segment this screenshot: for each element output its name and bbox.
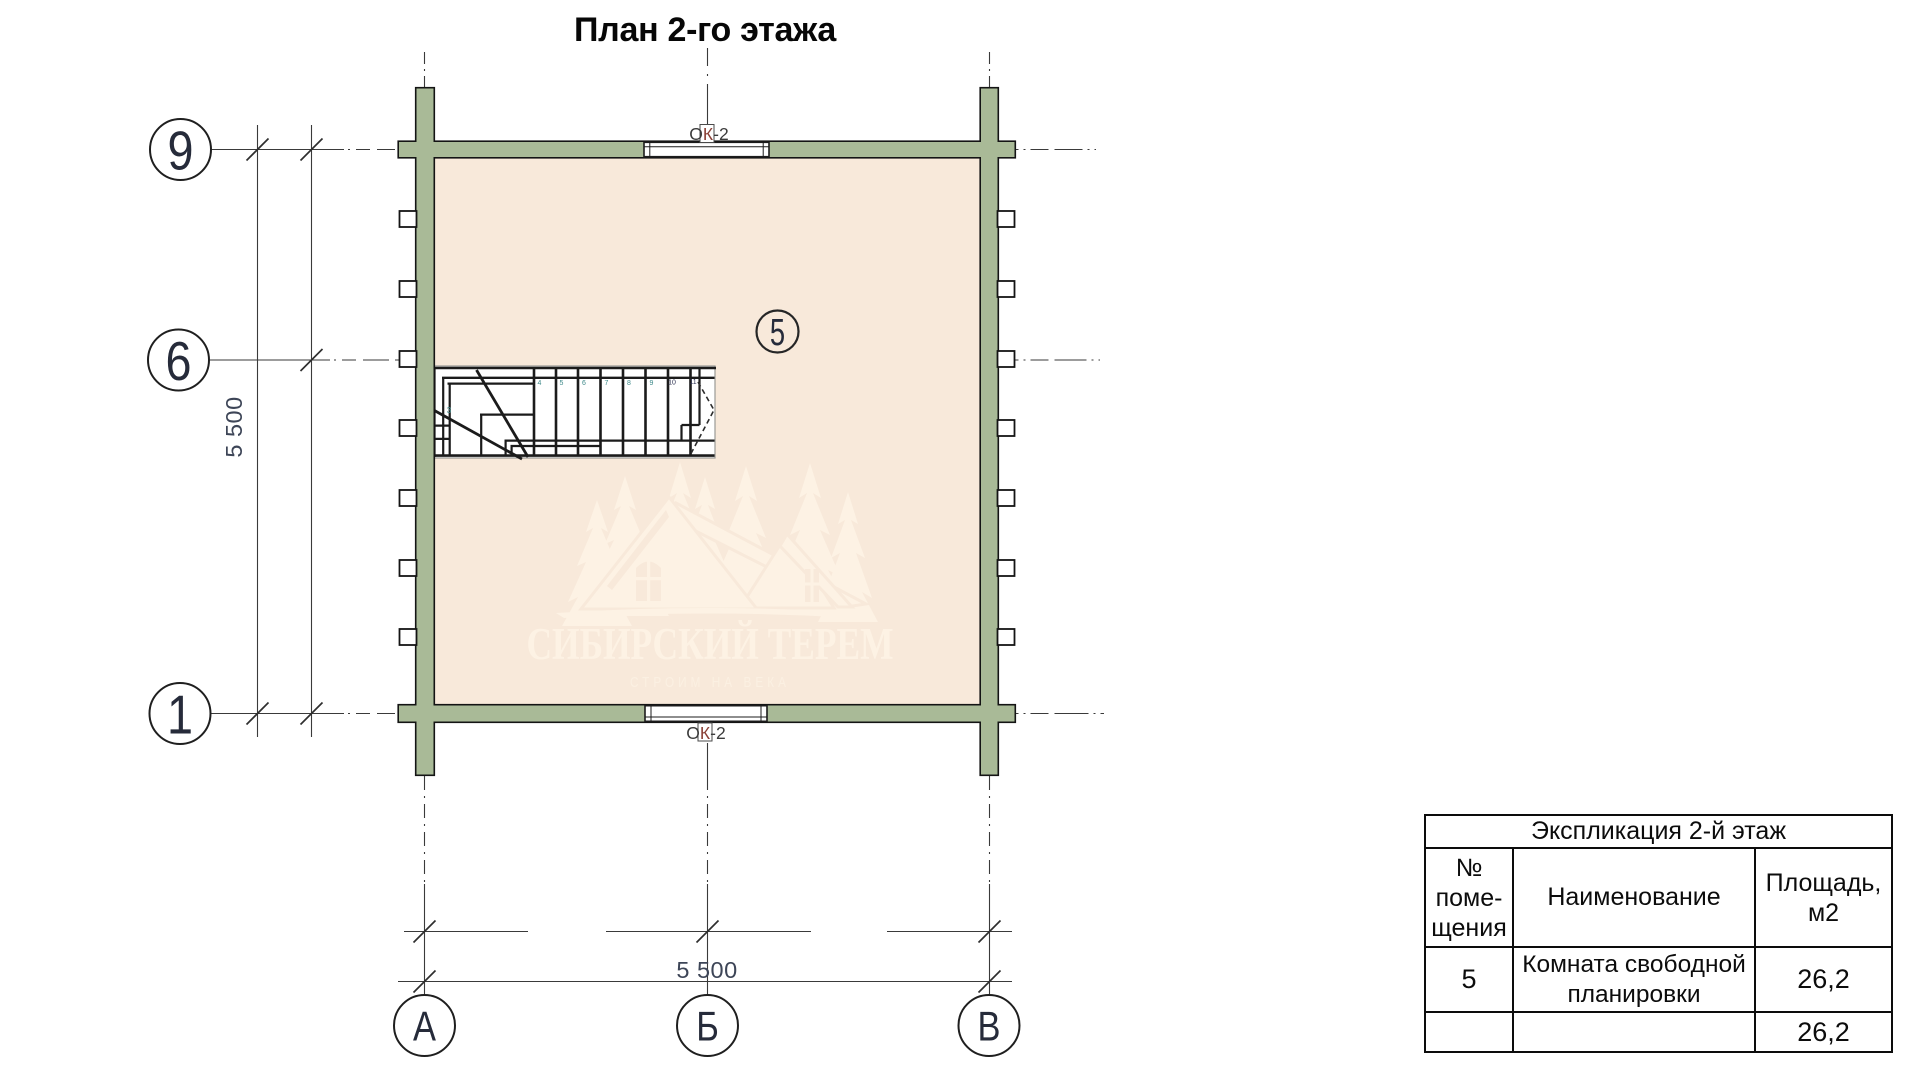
svg-text:6: 6 [165, 330, 191, 391]
svg-text:Б: Б [696, 1003, 719, 1050]
svg-text:7: 7 [605, 380, 609, 387]
svg-text:5: 5 [770, 312, 785, 354]
svg-text:5 500: 5 500 [221, 396, 247, 457]
svg-text:3: 3 [447, 406, 452, 415]
svg-text:СТРОИМ НА ВЕКА: СТРОИМ НА ВЕКА [630, 675, 790, 691]
svg-text:А: А [413, 1003, 436, 1050]
svg-text:6: 6 [582, 380, 586, 387]
svg-text:ОК-2: ОК-2 [686, 723, 725, 743]
svg-text:5 500: 5 500 [676, 957, 737, 983]
svg-text:9: 9 [167, 120, 193, 181]
svg-text:В: В [978, 1003, 1001, 1050]
svg-text:СИБИРСКИЙ ТЕРЕМ: СИБИРСКИЙ ТЕРЕМ [527, 619, 894, 669]
svg-text:10: 10 [668, 380, 676, 387]
svg-text:9: 9 [650, 380, 654, 387]
svg-text:4: 4 [538, 380, 542, 387]
svg-text:5: 5 [560, 380, 564, 387]
svg-text:11: 11 [689, 379, 696, 386]
svg-text:8: 8 [627, 380, 631, 387]
svg-text:ОК-2: ОК-2 [689, 124, 728, 144]
svg-text:1: 1 [167, 684, 193, 745]
